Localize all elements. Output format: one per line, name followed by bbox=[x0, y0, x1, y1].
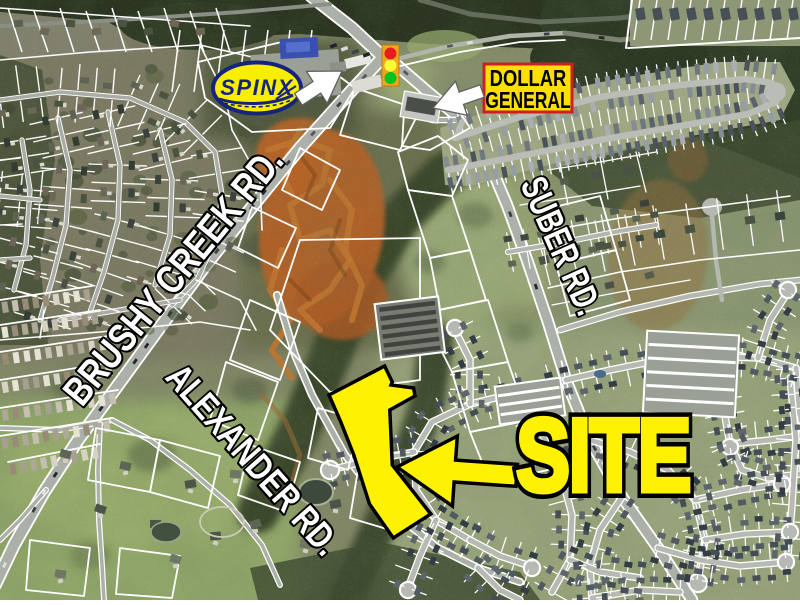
svg-text:DOLLAR: DOLLAR bbox=[490, 66, 567, 91]
svg-text:GENERAL: GENERAL bbox=[485, 89, 570, 114]
svg-text:SITE: SITE bbox=[516, 397, 690, 513]
svg-text:SPINX: SPINX bbox=[220, 75, 294, 100]
